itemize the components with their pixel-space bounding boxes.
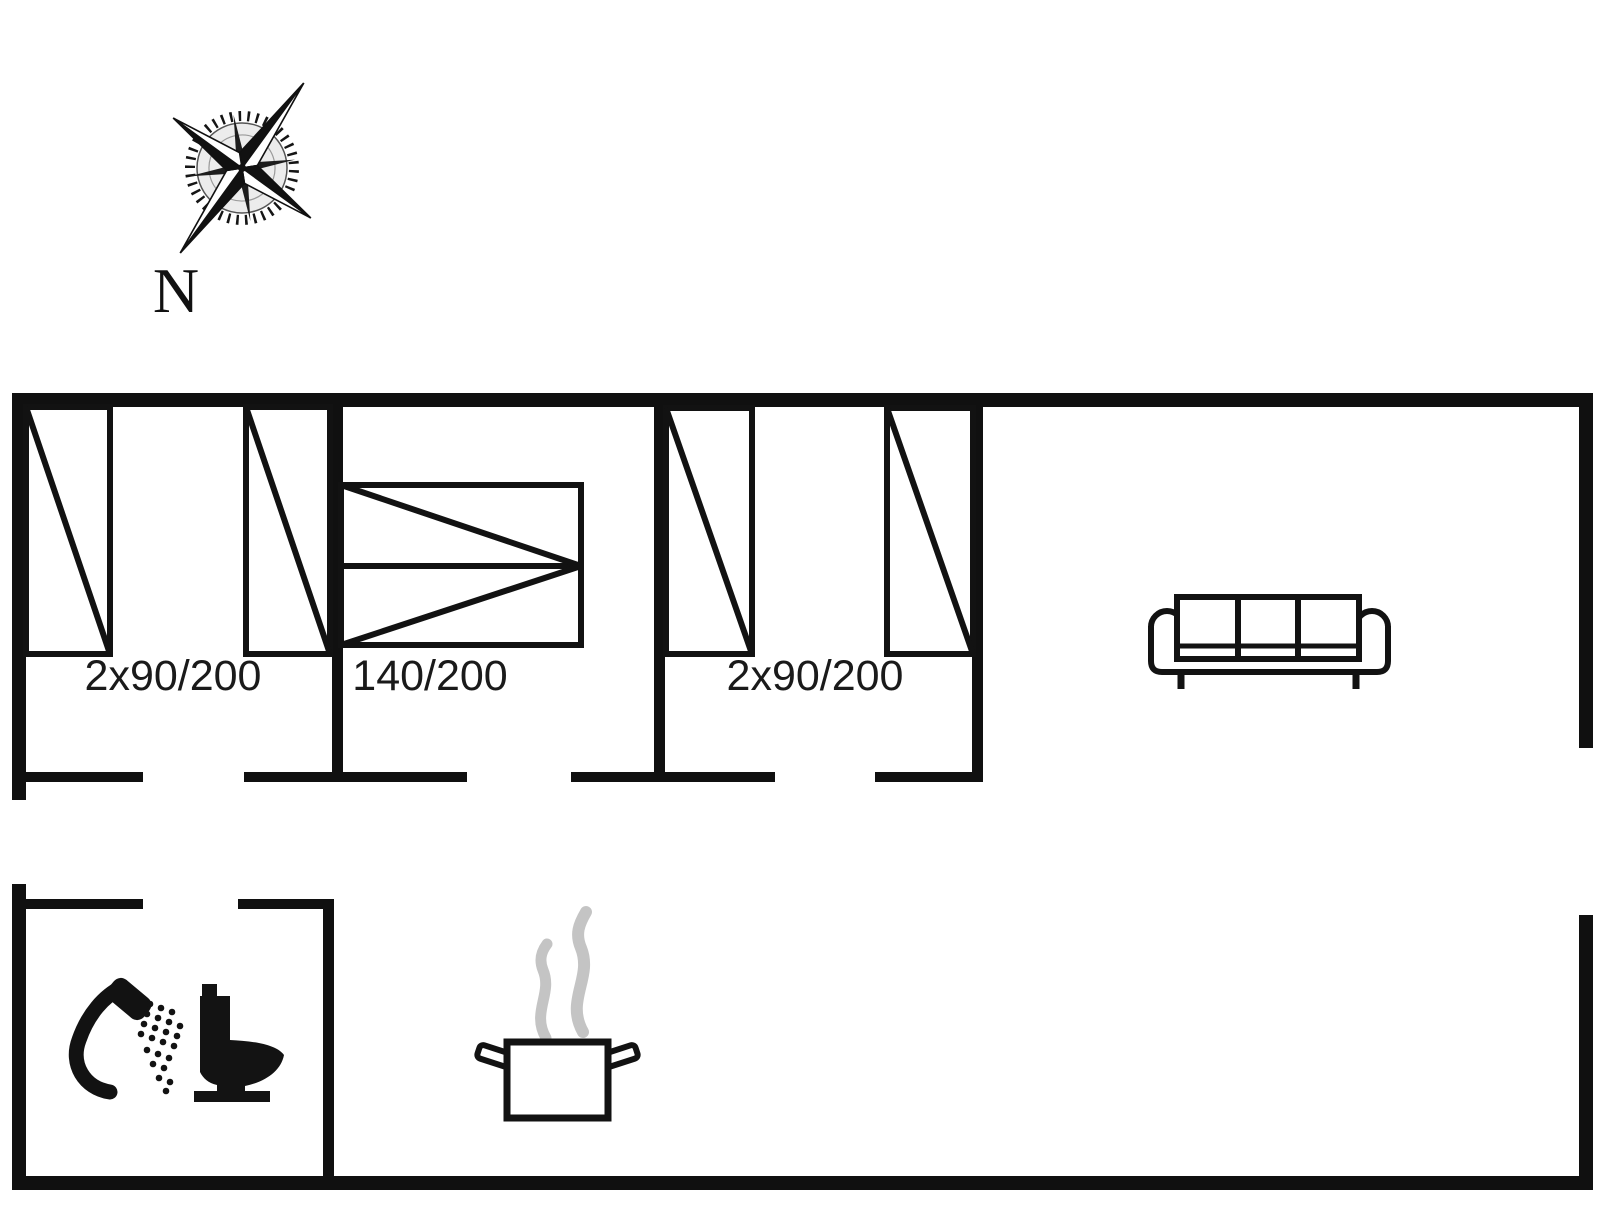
wall-bedroom1-front-left: [26, 772, 143, 782]
single-bed-symbol: [26, 407, 110, 654]
toilet-body: [194, 996, 284, 1102]
bedroom1-bed-size-label: 2x90/200: [85, 652, 262, 700]
double-bed-symbol: [341, 485, 581, 645]
wall-bedroom2-3-front: [571, 772, 775, 782]
cooking-pot-icon: [476, 912, 638, 1118]
sofa-icon: [1151, 597, 1388, 689]
toilet-flush-button: [202, 984, 217, 997]
toilet-icon: [194, 984, 284, 1102]
bedroom1-beds: [26, 407, 330, 654]
wall-bedroom3-front-right: [875, 772, 983, 782]
compass-rose-icon: N: [112, 33, 373, 326]
wall-exterior-left-lower: [12, 884, 26, 1176]
single-bed-symbol: [666, 408, 752, 654]
wall-bathroom-top-right: [238, 899, 334, 909]
compass-north-label: N: [153, 255, 199, 326]
bedroom3-beds: [666, 408, 973, 654]
bedroom3-bed-size-label: 2x90/200: [727, 652, 904, 700]
pot-body: [507, 1042, 608, 1118]
steam-icon: [541, 912, 586, 1038]
floor-plan-page: N: [0, 0, 1606, 1205]
wall-bathroom-top-left: [26, 899, 143, 909]
wall-exterior-right-upper: [1579, 393, 1593, 748]
wall-exterior-bottom: [12, 1176, 1593, 1190]
bedroom2-double-bed: [341, 485, 581, 645]
shower-icon: [76, 974, 183, 1094]
single-bed-symbol: [887, 408, 973, 654]
shower-spray-dots: [138, 1001, 184, 1095]
bedroom2-bed-size-label: 140/200: [352, 652, 507, 700]
wall-bathroom-right: [323, 899, 334, 1176]
sofa-cushions: [1177, 597, 1359, 659]
floor-plan-drawing: N: [0, 0, 1606, 1205]
single-bed-symbol: [246, 407, 330, 654]
wall-exterior-right-lower: [1579, 915, 1593, 1190]
wall-bedroom1-2-front: [244, 772, 467, 782]
